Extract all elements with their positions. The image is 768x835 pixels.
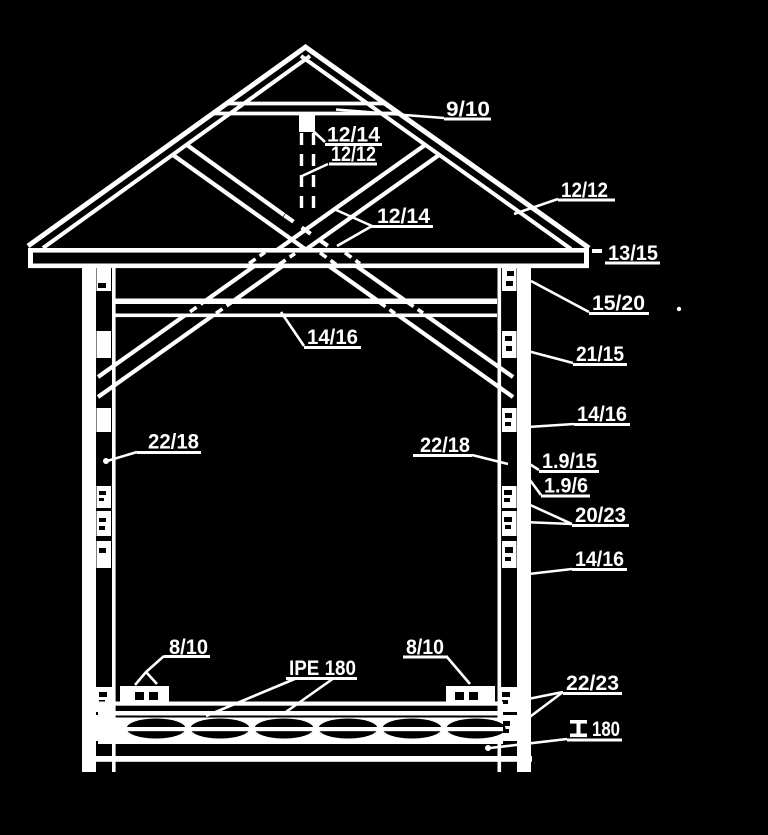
svg-text:14/16: 14/16 [577,403,627,426]
svg-text:12/14: 12/14 [377,205,430,228]
svg-text:IPE 180: IPE 180 [289,657,356,680]
svg-text:14/16: 14/16 [307,326,358,349]
svg-text:1.9/6: 1.9/6 [544,475,588,498]
svg-text:20/23: 20/23 [575,504,626,527]
svg-text:22/23: 22/23 [566,672,619,695]
svg-text:15/20: 15/20 [592,292,645,315]
svg-text:21/15: 21/15 [576,343,624,366]
svg-text:180: 180 [592,718,620,741]
svg-text:22/18: 22/18 [420,434,470,457]
svg-text:22/18: 22/18 [148,431,199,454]
svg-text:14/16: 14/16 [575,548,624,571]
svg-text:1.9/15: 1.9/15 [542,450,597,473]
